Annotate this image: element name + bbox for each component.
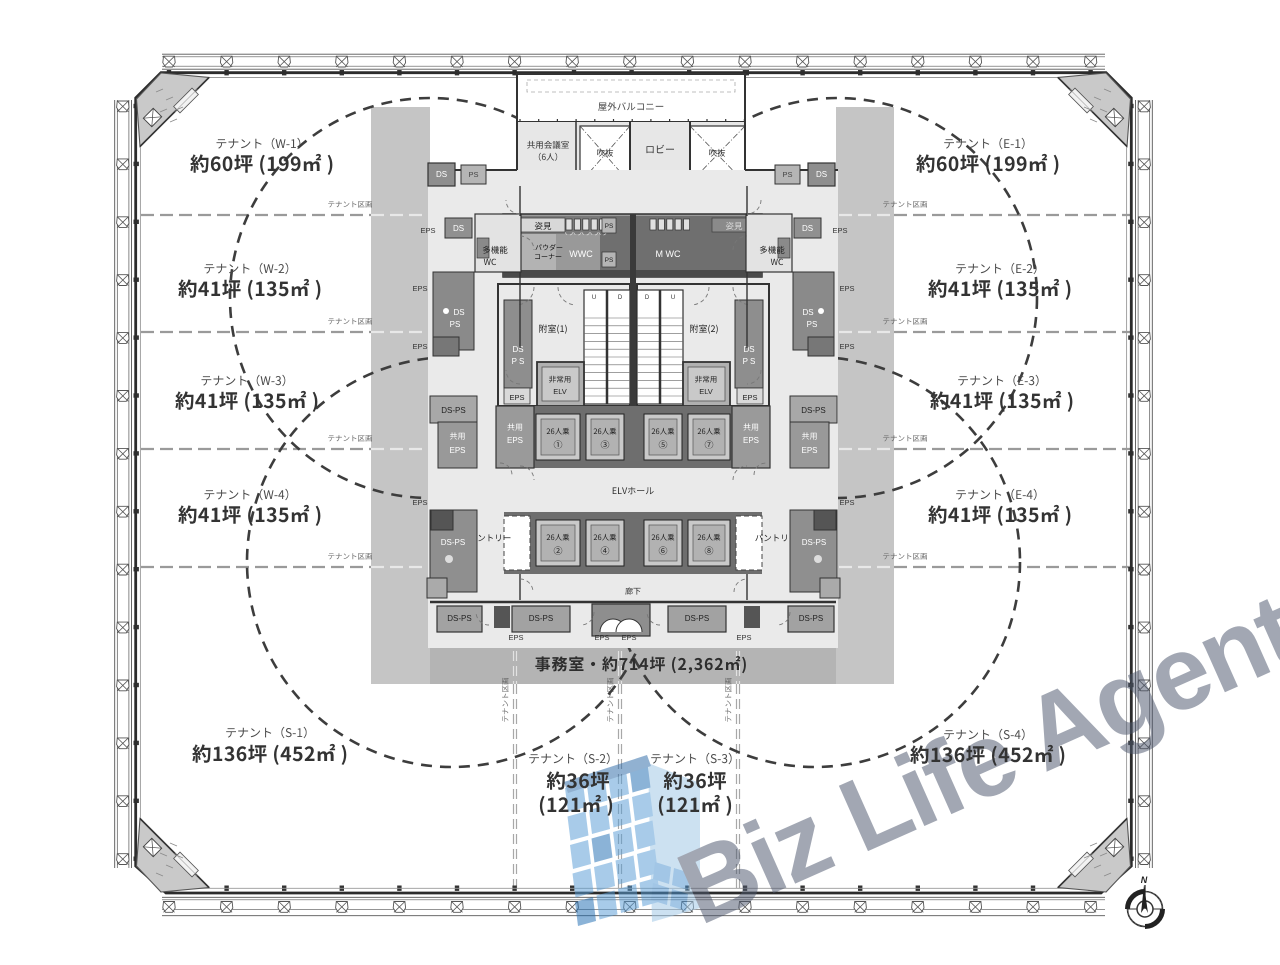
svg-text:DS: DS bbox=[512, 345, 523, 354]
svg-text:EPS: EPS bbox=[832, 226, 847, 235]
svg-text:DS-PS: DS-PS bbox=[799, 614, 823, 623]
svg-text:N: N bbox=[1141, 875, 1148, 885]
svg-text:D: D bbox=[645, 295, 650, 301]
svg-text:EPS: EPS bbox=[412, 342, 427, 351]
svg-text:EPS: EPS bbox=[839, 284, 854, 293]
svg-text:DS-PS: DS-PS bbox=[801, 406, 825, 415]
svg-text:P S: P S bbox=[743, 357, 756, 366]
svg-text:DS-PS: DS-PS bbox=[441, 538, 465, 547]
svg-text:U: U bbox=[592, 295, 596, 301]
svg-text:EPS: EPS bbox=[801, 446, 817, 455]
svg-text:U: U bbox=[671, 295, 675, 301]
svg-text:DS-PS: DS-PS bbox=[685, 614, 709, 623]
svg-text:EPS: EPS bbox=[839, 342, 854, 351]
svg-text:PS: PS bbox=[605, 223, 614, 230]
svg-text:EPS: EPS bbox=[507, 436, 523, 445]
svg-text:DS: DS bbox=[802, 224, 813, 233]
svg-text:EPS: EPS bbox=[412, 498, 427, 507]
svg-text:DS-PS: DS-PS bbox=[529, 614, 553, 623]
svg-text:DS: DS bbox=[816, 170, 827, 179]
svg-text:DS-PS: DS-PS bbox=[441, 406, 465, 415]
svg-text:DS: DS bbox=[453, 308, 464, 317]
svg-text:P S: P S bbox=[512, 357, 525, 366]
svg-text:D: D bbox=[618, 295, 623, 301]
svg-text:DS: DS bbox=[453, 224, 464, 233]
svg-text:PS: PS bbox=[807, 320, 818, 329]
svg-text:EPS: EPS bbox=[742, 393, 757, 402]
svg-text:EPS: EPS bbox=[839, 498, 854, 507]
svg-text:EPS: EPS bbox=[420, 226, 435, 235]
svg-text:EPS: EPS bbox=[736, 633, 751, 642]
svg-text:EPS: EPS bbox=[412, 284, 427, 293]
svg-text:DS-PS: DS-PS bbox=[802, 538, 826, 547]
svg-text:EPS: EPS bbox=[509, 393, 524, 402]
svg-text:DS: DS bbox=[802, 308, 813, 317]
svg-text:EPS: EPS bbox=[449, 446, 465, 455]
svg-text:EPS: EPS bbox=[508, 633, 523, 642]
svg-text:M WC: M WC bbox=[656, 249, 681, 259]
svg-text:EPS: EPS bbox=[594, 633, 609, 642]
svg-text:WWC: WWC bbox=[569, 249, 593, 259]
svg-text:EPS: EPS bbox=[621, 633, 636, 642]
svg-text:PS: PS bbox=[450, 320, 461, 329]
svg-text:PS: PS bbox=[468, 170, 478, 179]
svg-text:DS-PS: DS-PS bbox=[447, 614, 471, 623]
svg-text:ELV: ELV bbox=[699, 387, 713, 396]
svg-text:DS: DS bbox=[436, 170, 447, 179]
svg-text:PS: PS bbox=[605, 257, 614, 264]
svg-text:ELV: ELV bbox=[553, 387, 567, 396]
svg-text:PS: PS bbox=[782, 170, 792, 179]
svg-text:DS: DS bbox=[743, 345, 754, 354]
svg-text:EPS: EPS bbox=[743, 436, 759, 445]
